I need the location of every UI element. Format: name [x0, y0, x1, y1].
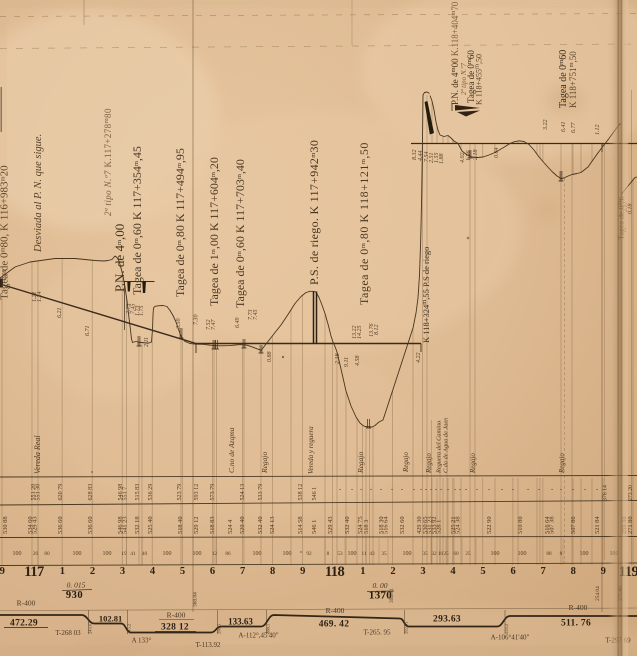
svg-text:524 38: 524 38	[455, 516, 462, 534]
svg-text:A 133°: A 133°	[132, 637, 152, 645]
svg-text:Tagea de 0m,80 K 118+121m,50: Tagea de 0m,80 K 118+121m,50	[357, 142, 371, 305]
svg-text:2.98: 2.98	[2, 270, 8, 281]
svg-text:530 88: 530 88	[2, 516, 9, 534]
svg-text:1.12: 1.12	[595, 125, 601, 136]
svg-text:117: 117	[24, 564, 44, 580]
svg-text:1: 1	[360, 566, 365, 577]
svg-text:245.2: 245.2	[127, 624, 132, 634]
svg-text:254.04: 254.04	[595, 586, 601, 601]
svg-text:100: 100	[163, 551, 172, 557]
svg-text:529 43: 529 43	[32, 516, 39, 534]
svg-text:518 40: 518 40	[177, 516, 184, 534]
svg-text:K 118+751m,50: K 118+751m,50	[568, 51, 578, 108]
svg-text:8.12: 8.12	[374, 325, 380, 336]
svg-text:7.30: 7.30	[194, 315, 200, 326]
svg-text:593 12: 593 12	[194, 484, 200, 501]
svg-text:1.88: 1.88	[439, 154, 445, 165]
svg-text:7.45: 7.45	[252, 310, 259, 321]
svg-text:376 14: 376 14	[603, 485, 609, 501]
svg-text:3.22: 3.22	[543, 120, 549, 132]
svg-text:Tagea de 0m,60 K 117+703m,40: Tagea de 0m,60 K 117+703m,40	[233, 159, 247, 308]
svg-text:Regajo: Regajo	[356, 452, 365, 474]
svg-text:100: 100	[518, 551, 527, 557]
svg-text:620 79: 620 79	[58, 484, 64, 501]
svg-text:Regajo: Regajo	[469, 453, 477, 474]
svg-text:40: 40	[142, 551, 148, 557]
svg-text:328 12: 328 12	[161, 623, 189, 633]
svg-text:7.47: 7.47	[210, 319, 217, 331]
svg-text:6: 6	[511, 566, 516, 577]
svg-text:514 58: 514 58	[297, 516, 304, 534]
svg-text:100: 100	[253, 551, 262, 557]
svg-text:100: 100	[73, 551, 82, 557]
svg-text:Tagea de 0m,60 K 117+354m,45: Tagea de 0m,60 K 117+354m,45	[130, 146, 144, 295]
svg-text:Tagea de 1m,00 K 117+604m,20: Tagea de 1m,00 K 117+604m,20	[207, 157, 221, 306]
svg-text:100: 100	[193, 551, 202, 557]
svg-text:32: 32	[431, 551, 437, 557]
svg-text:532 60: 532 60	[399, 516, 406, 534]
svg-text:551 7: 551 7	[123, 487, 129, 501]
svg-text:100: 100	[403, 551, 412, 557]
svg-text:538 12: 538 12	[298, 484, 304, 501]
svg-text:510 80: 510 80	[517, 516, 524, 534]
svg-text:14.25: 14.25	[356, 326, 363, 340]
svg-text:0. 015: 0. 015	[67, 581, 86, 590]
svg-text:532 18: 532 18	[134, 516, 141, 534]
svg-text:532 40: 532 40	[344, 516, 351, 534]
svg-text:5: 5	[480, 566, 485, 577]
svg-text:551 30: 551 30	[36, 484, 42, 501]
svg-text:9: 9	[601, 566, 606, 577]
svg-text:60: 60	[453, 551, 459, 557]
svg-text:2.18: 2.18	[335, 354, 341, 365]
svg-text:518 3: 518 3	[363, 520, 370, 534]
svg-text:25: 25	[465, 551, 471, 557]
svg-text:3: 3	[120, 566, 125, 577]
svg-text:469. 42: 469. 42	[319, 620, 350, 630]
svg-text:6.77: 6.77	[571, 122, 577, 134]
svg-text:R-400: R-400	[17, 599, 36, 608]
svg-text:528 1: 528 1	[436, 520, 443, 534]
svg-text:573 79: 573 79	[210, 484, 216, 501]
svg-text:8: 8	[270, 566, 275, 577]
svg-text:P.S. de riego. K 117+942m30: P.S. de riego. K 117+942m30	[307, 140, 321, 285]
svg-text:536 60: 536 60	[87, 516, 94, 534]
svg-text:293.63: 293.63	[433, 615, 461, 625]
svg-text:P.N. de 4m,00: P.N. de 4m,00	[112, 224, 127, 292]
svg-text:2: 2	[390, 566, 395, 577]
svg-text:472.29: 472.29	[10, 619, 38, 629]
svg-text:524 4: 524 4	[227, 519, 234, 534]
svg-text:392.81: 392.81	[389, 588, 395, 603]
svg-text:Vereda Real: Vereda Real	[33, 435, 42, 474]
svg-text:4.02: 4.02	[459, 153, 466, 164]
svg-text:6.71: 6.71	[85, 326, 91, 337]
svg-text:1.24: 1.24	[36, 292, 43, 303]
svg-text:9: 9	[300, 566, 305, 577]
svg-text:3.50: 3.50	[176, 319, 182, 331]
svg-text:536 29: 536 29	[148, 484, 154, 501]
svg-text:6: 6	[210, 566, 215, 577]
svg-text:T-265. 95: T-265. 95	[364, 629, 391, 637]
svg-text:4.58: 4.58	[354, 356, 361, 367]
svg-text:2: 2	[90, 566, 95, 577]
svg-text:4.44: 4.44	[417, 151, 424, 162]
svg-text:524 13: 524 13	[269, 516, 276, 534]
svg-text:529 43: 529 43	[327, 516, 334, 534]
svg-text:522 90: 522 90	[486, 516, 493, 534]
svg-text:133.63: 133.63	[228, 617, 253, 627]
svg-text:20: 20	[33, 551, 39, 557]
svg-text:Reguera del Camino: Reguera del Camino	[436, 421, 443, 474]
svg-text:100: 100	[491, 551, 500, 557]
svg-text:6.41: 6.41	[560, 122, 567, 133]
svg-text:525 40: 525 40	[147, 516, 154, 534]
svg-text:Tagea de 0m,80 K 117+494m,95: Tagea de 0m,80 K 117+494m,95	[173, 148, 187, 297]
svg-text:C.no de Azqma: C.no de Azqma	[227, 427, 236, 473]
svg-text:524 13: 524 13	[240, 484, 246, 501]
svg-text:Regajo: Regajo	[425, 453, 433, 474]
svg-text:100: 100	[103, 551, 112, 557]
svg-text:41: 41	[130, 551, 136, 557]
svg-text:100: 100	[13, 551, 22, 557]
svg-text:8: 8	[560, 551, 563, 557]
svg-text:Regajo: Regajo	[402, 452, 410, 473]
svg-text:C.da de Agua de Jaen: C.da de Agua de Jaen	[443, 418, 450, 473]
svg-text:Vereda y reguera: Vereda y reguera	[307, 426, 315, 474]
svg-text:243.62: 243.62	[88, 622, 93, 634]
svg-text:533 79: 533 79	[258, 484, 264, 501]
svg-text:7: 7	[240, 566, 245, 577]
svg-text:T-113.92: T-113.92	[196, 641, 221, 649]
svg-text:6.21: 6.21	[57, 308, 63, 319]
svg-text:2.11: 2.11	[144, 337, 150, 347]
svg-text:507 86: 507 86	[570, 516, 577, 534]
svg-text:35: 35	[422, 551, 428, 557]
svg-text:546 1: 546 1	[311, 520, 318, 534]
svg-text:P.N. de 4m00 K.118+404m70: P.N. de 4m00 K.118+404m70	[450, 1, 460, 105]
svg-text:298.5: 298.5	[217, 623, 222, 634]
svg-text:R-400: R-400	[326, 606, 345, 615]
svg-text:100: 100	[283, 551, 292, 557]
svg-text:53: 53	[337, 551, 343, 557]
svg-text:100: 100	[580, 551, 589, 557]
svg-text:292.51: 292.51	[404, 622, 409, 634]
svg-text:80: 80	[44, 551, 50, 557]
svg-text:0.64: 0.64	[493, 148, 500, 159]
svg-text:507 38: 507 38	[549, 516, 556, 534]
svg-text:930: 930	[66, 590, 83, 601]
svg-text:536 60: 536 60	[57, 516, 64, 534]
svg-text:2ª tipo N.º7 K.117+278m80: 2ª tipo N.º7 K.117+278m80	[103, 108, 113, 216]
svg-text:4.22: 4.22	[415, 353, 422, 364]
svg-text:T-268 03: T-268 03	[55, 629, 81, 637]
svg-text:1: 1	[60, 566, 65, 577]
svg-text:Desviada al P. N. que sigue.: Desviada al P. N. que sigue.	[33, 134, 44, 253]
svg-text:R-400: R-400	[569, 603, 588, 612]
svg-text:516 64: 516 64	[383, 516, 390, 534]
svg-text:511. 76: 511. 76	[561, 619, 591, 629]
svg-text:92: 92	[306, 551, 312, 557]
svg-text:88: 88	[546, 551, 552, 557]
svg-text:100: 100	[348, 551, 357, 557]
svg-text:9: 9	[0, 566, 5, 577]
svg-text:546 1: 546 1	[312, 487, 318, 501]
svg-text:518 83: 518 83	[209, 516, 216, 534]
svg-text:86: 86	[225, 551, 231, 557]
svg-text:8: 8	[571, 566, 576, 577]
svg-text:515 83: 515 83	[135, 484, 141, 501]
svg-text:5: 5	[180, 566, 185, 577]
svg-text:K 118+324m,55 P.S de riego: K 118+324m,55 P.S de riego	[421, 247, 431, 343]
svg-text:532 40: 532 40	[257, 516, 264, 534]
svg-text:A-106°41'40": A-106°41'40"	[491, 634, 530, 642]
svg-text:0.88: 0.88	[267, 352, 273, 363]
svg-text:1.26: 1.26	[466, 151, 472, 162]
svg-text:9.11: 9.11	[344, 357, 350, 367]
svg-text:35: 35	[381, 551, 387, 557]
svg-text:529 12: 529 12	[193, 516, 200, 534]
svg-text:1.75: 1.75	[139, 306, 145, 317]
svg-text:6.49: 6.49	[234, 318, 241, 329]
svg-text:288.1: 288.1	[266, 624, 271, 634]
svg-text:Regajo: Regajo	[260, 452, 269, 474]
svg-text:8: 8	[327, 551, 330, 557]
svg-text:541 23: 541 23	[122, 516, 129, 534]
svg-text:3: 3	[420, 566, 425, 577]
svg-text:43: 43	[369, 551, 375, 557]
svg-text:7: 7	[541, 566, 546, 577]
svg-text:628 83: 628 83	[88, 484, 94, 501]
svg-text:521 84: 521 84	[594, 516, 601, 534]
svg-text:A-112°,45'40": A-112°,45'40"	[238, 632, 278, 640]
svg-text:102.81: 102.81	[99, 614, 122, 624]
svg-text:2.18: 2.18	[473, 150, 479, 161]
svg-text:12: 12	[212, 551, 218, 557]
svg-text:523 79: 523 79	[177, 484, 183, 501]
svg-text:R-400: R-400	[167, 611, 186, 620]
svg-text:368.84: 368.84	[193, 592, 199, 607]
svg-text:Regajo: Regajo	[558, 453, 566, 474]
svg-text:K 118+455m,50: K 118+455m,50	[474, 54, 484, 105]
svg-text:520 40: 520 40	[239, 516, 246, 534]
svg-text:118: 118	[325, 564, 345, 580]
svg-text:553.2: 553.2	[504, 624, 509, 634]
